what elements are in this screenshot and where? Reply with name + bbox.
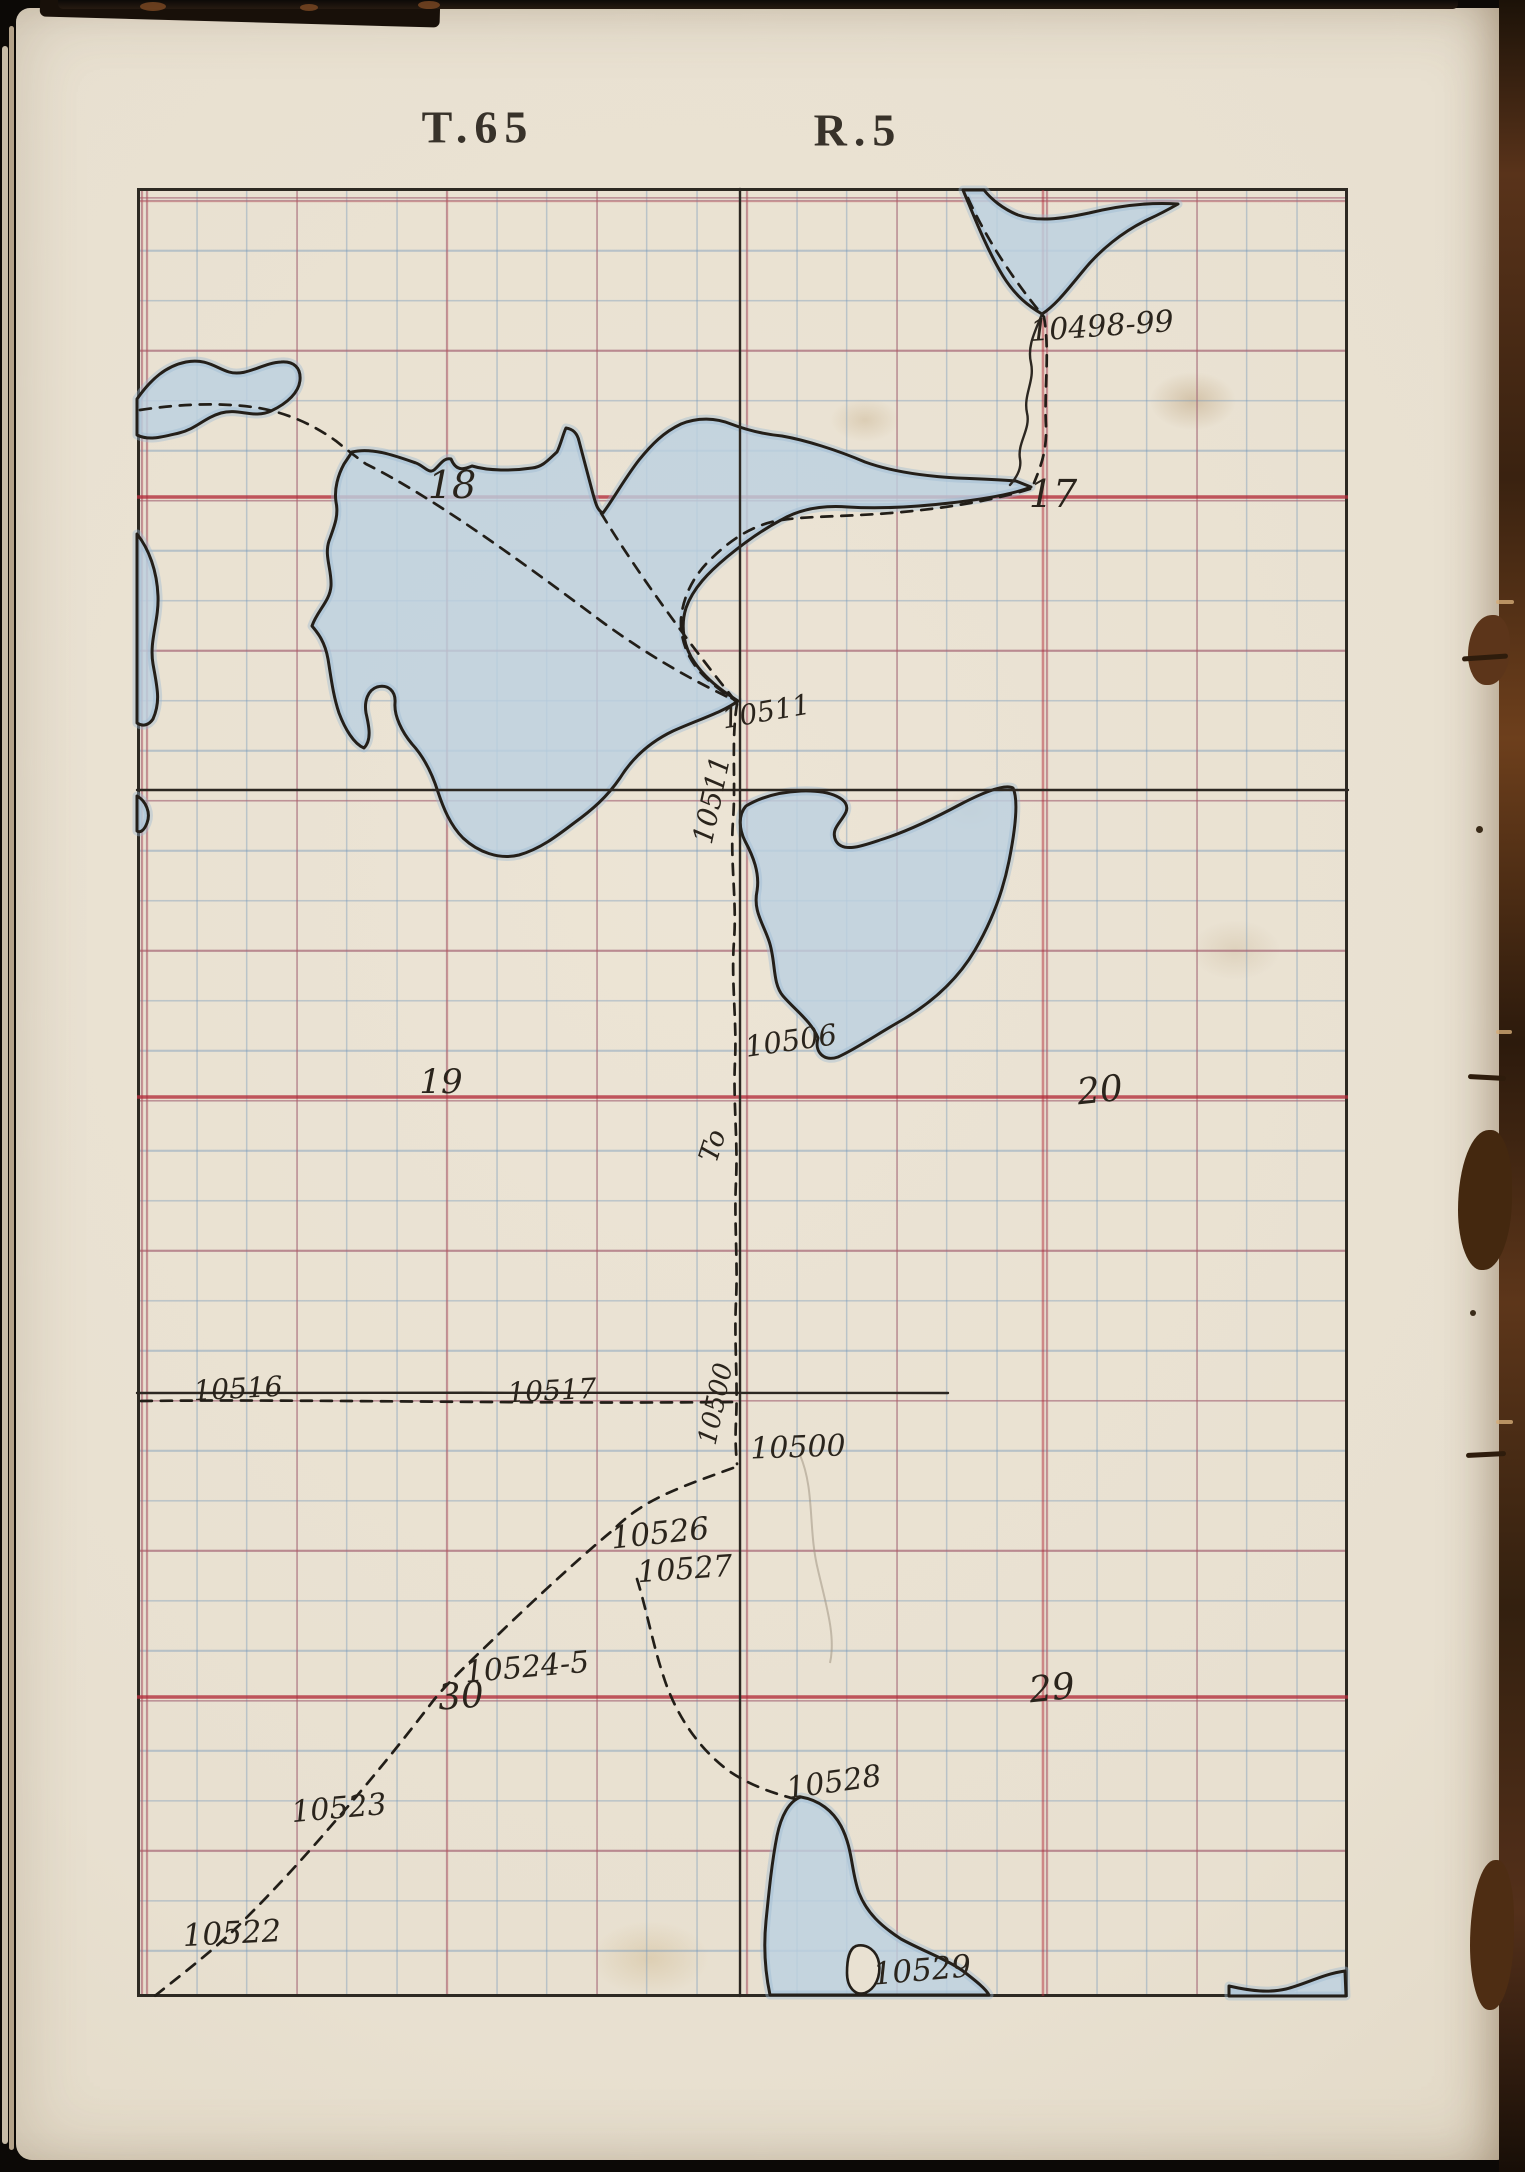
station-10529: 10529 [872,1951,973,1990]
section-number-19: 19 [419,1065,462,1099]
book-binding [1499,0,1525,2172]
station-10500: 10500 [750,1431,846,1464]
station-10516: 10516 [193,1373,283,1406]
traverse-to-10528 [637,1579,795,1799]
section-number-29: 29 [1027,1669,1076,1710]
lake-right-middle [740,787,1016,1058]
ink-speck [1470,1310,1476,1316]
binding-thread [1496,1030,1512,1034]
lake-top-left [137,361,300,438]
section-number-17: 17 [1029,475,1077,513]
section-line-vertical [740,189,741,1996]
lake-left-sliver-small [137,796,148,832]
station-10527: 10527 [636,1552,733,1589]
section-number-18: 18 [428,466,476,504]
lake-top-right [963,190,1178,314]
station-10517: 10517 [507,1375,597,1408]
notebook-page-scan: T.65 R.5 18 17 19 20 30 29 10498-99 1051… [0,0,1525,2172]
lake-left-sliver [137,534,158,725]
binding-thread [1496,600,1514,604]
binding-thread [1496,1420,1513,1424]
section-number-20: 20 [1075,1071,1124,1112]
station-10523: 10523 [290,1790,388,1828]
township-label: T.65 [422,101,535,154]
ink-speck [1476,826,1483,833]
station-10522: 10522 [182,1916,282,1952]
pencil-squiggle [800,1455,832,1663]
lake-bottom-right-corner [1229,1971,1346,1996]
section-line-horizontal [137,789,1348,790]
map-drawing-layer [0,0,1525,2172]
range-label: R.5 [814,104,903,157]
